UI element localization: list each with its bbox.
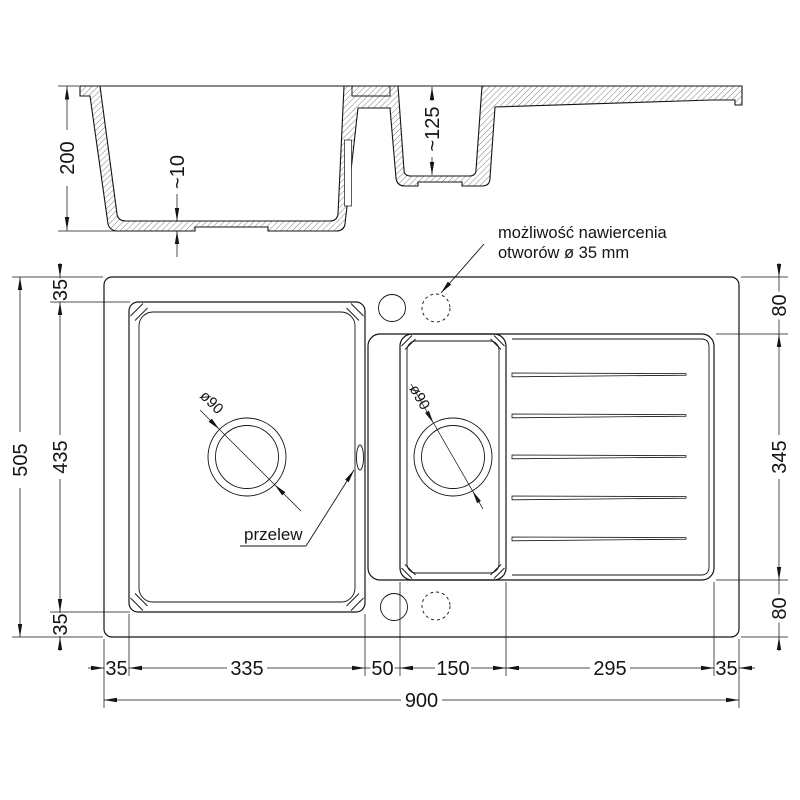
dim-right-bottom: 80 [769,597,791,619]
overflow-slot [357,445,364,470]
dim-left-middle: 435 [50,440,72,473]
small-drain-label: ø90 [406,382,434,413]
optional-hole-top [422,294,450,322]
section-main-bowl-cavity [100,86,344,221]
dim-bottom-5: 295 [593,658,626,680]
main-drain-label: ø90 [196,387,226,417]
dim-505-label: 505 [10,443,32,476]
dim-right-top: 80 [769,294,791,316]
section-overflow-channel [345,140,352,206]
dim-bottom-4: 150 [436,658,469,680]
dim-overall-depth: 505 [9,277,32,637]
plan-view: ø90 ø90 [9,224,791,712]
drill-note-line1: możliwość nawiercenia [498,224,668,242]
dim-125-label: ~125 [422,106,444,151]
dim-bottom-3: 50 [371,658,393,680]
dim-left-bottom: 35 [50,613,72,635]
technical-drawing-page: 200 ~10 ~125 [0,0,800,800]
dim-bottom-1: 35 [105,658,127,680]
drainer-area [368,334,714,580]
overflow-annotation: przelew [240,470,354,546]
optional-hole-bottom [422,592,450,620]
dim-left-top: 35 [50,279,72,301]
overflow-label: przelew [244,525,303,544]
dim-10-label: ~10 [167,155,189,189]
drill-note: możliwość nawiercenia otworów ø 35 mm [441,224,668,293]
sink-technical-drawing: 200 ~10 ~125 [0,0,800,800]
dim-bottom-2: 335 [230,658,263,680]
dim-bottom-6: 35 [715,658,737,680]
drainer-grooves [512,373,686,541]
dim-right-middle: 345 [769,440,791,473]
dim-900-label: 900 [405,690,438,712]
small-bowl: ø90 [400,334,506,580]
tap-hole-bottom [381,594,408,621]
main-bowl: ø90 [129,302,365,612]
dim-200-label: 200 [57,141,79,174]
dims-right: 80 345 80 [716,263,791,651]
tap-hole-top [379,295,406,322]
dim-overall-width: 900 [104,689,739,712]
drill-note-line2: otworów ø 35 mm [498,244,629,262]
